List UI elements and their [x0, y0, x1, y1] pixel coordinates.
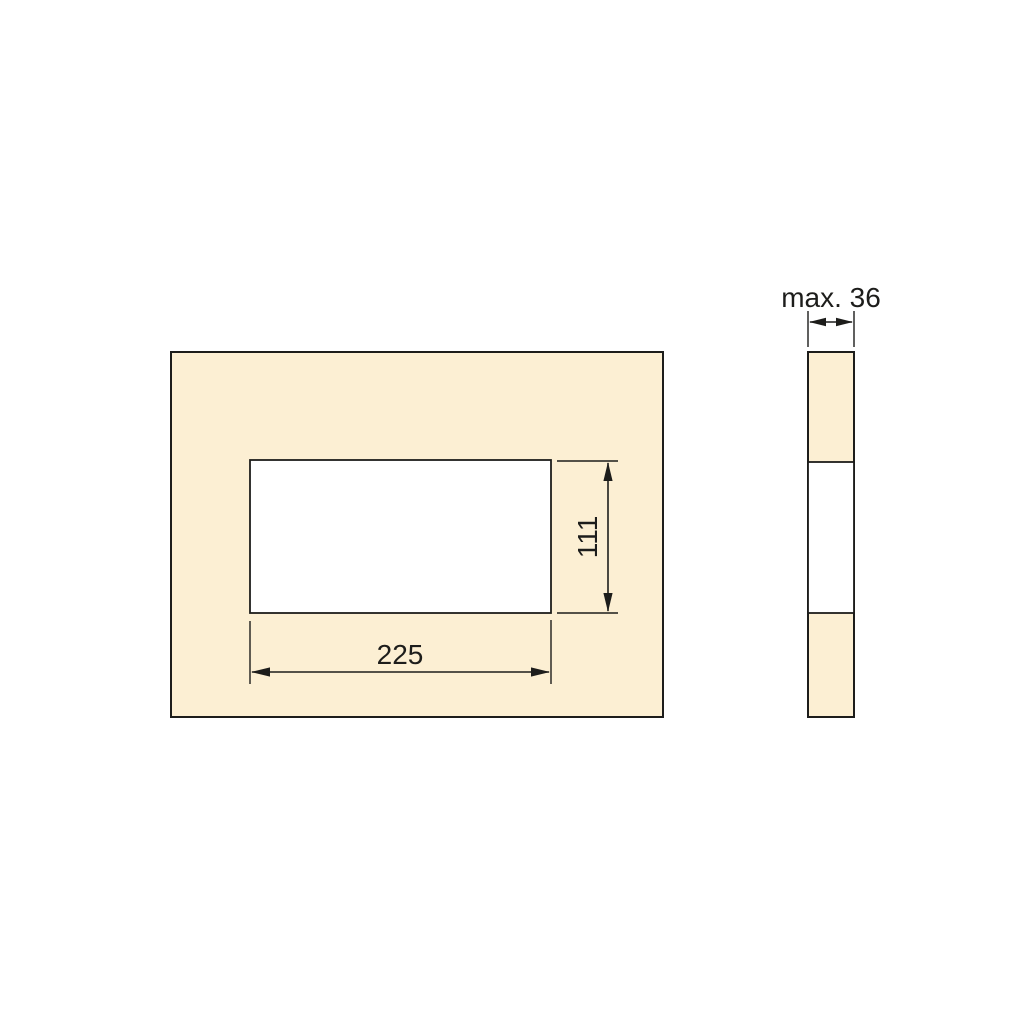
cutout-width-label: 225 — [377, 639, 424, 670]
panel-thickness-dimension: max. 36 — [781, 282, 881, 347]
drawing-canvas: 225 111 max. 36 — [0, 0, 1024, 1024]
arrow-left-icon — [809, 318, 826, 327]
cutout-height-label: 111 — [572, 516, 603, 559]
side-cutout-band — [808, 462, 854, 613]
cutout-opening — [250, 460, 551, 613]
arrow-right-icon — [836, 318, 853, 327]
side-view — [808, 352, 854, 717]
technical-drawing: 225 111 max. 36 — [0, 0, 1024, 1024]
panel-thickness-label: max. 36 — [781, 282, 881, 313]
